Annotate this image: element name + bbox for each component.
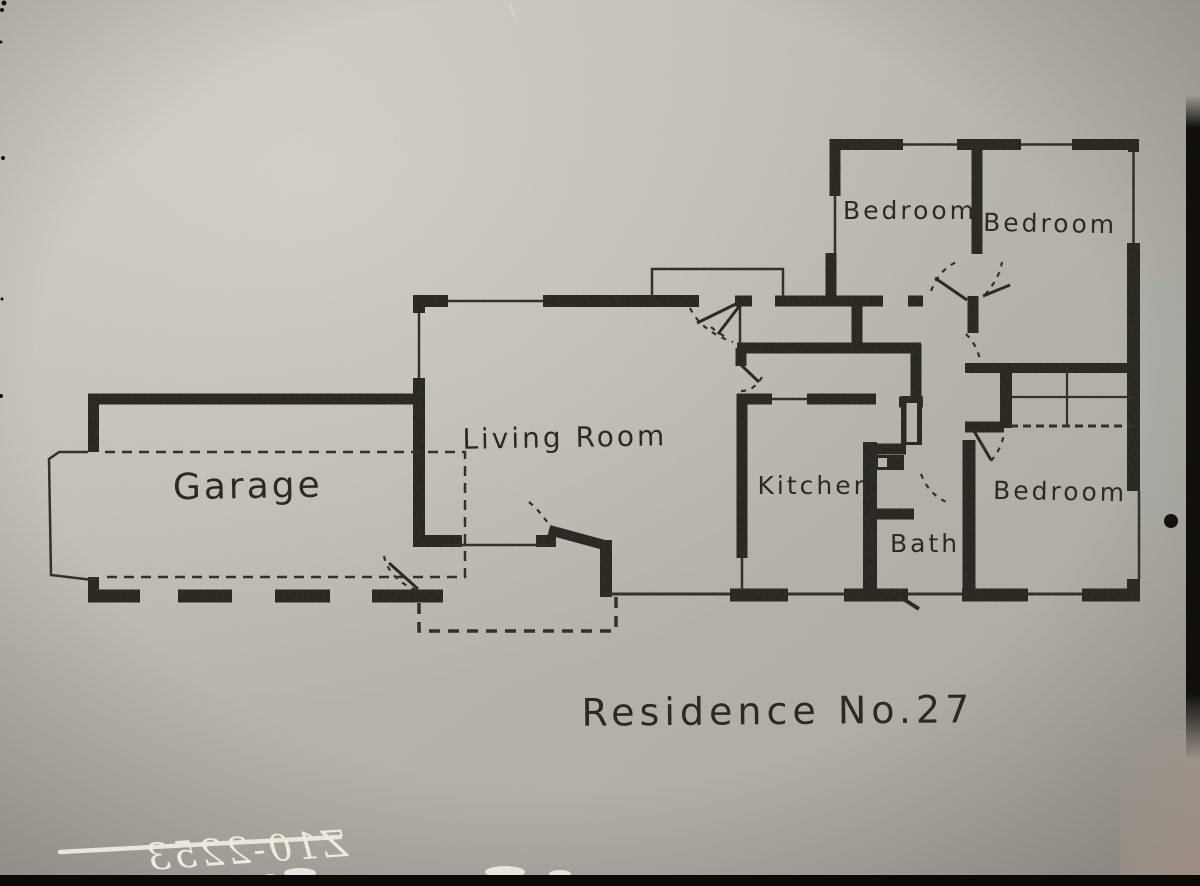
photo-blemish-dot — [1164, 514, 1178, 528]
edge-speck — [2, 1, 7, 6]
edge-speck — [1, 156, 5, 160]
film-edge-black-strip — [0, 875, 1200, 886]
edge-speck — [0, 8, 4, 12]
photo-teal-tint — [1142, 280, 1178, 520]
photo-right-dark-band — [1186, 95, 1200, 760]
floorplan-svg: Garage Living Room Kitchen Bath Bedroom … — [0, 0, 1200, 886]
photo-vignette — [0, 0, 1200, 886]
floorplan-photograph: Garage Living Room Kitchen Bath Bedroom … — [0, 0, 1200, 886]
edge-speck — [1, 298, 4, 301]
